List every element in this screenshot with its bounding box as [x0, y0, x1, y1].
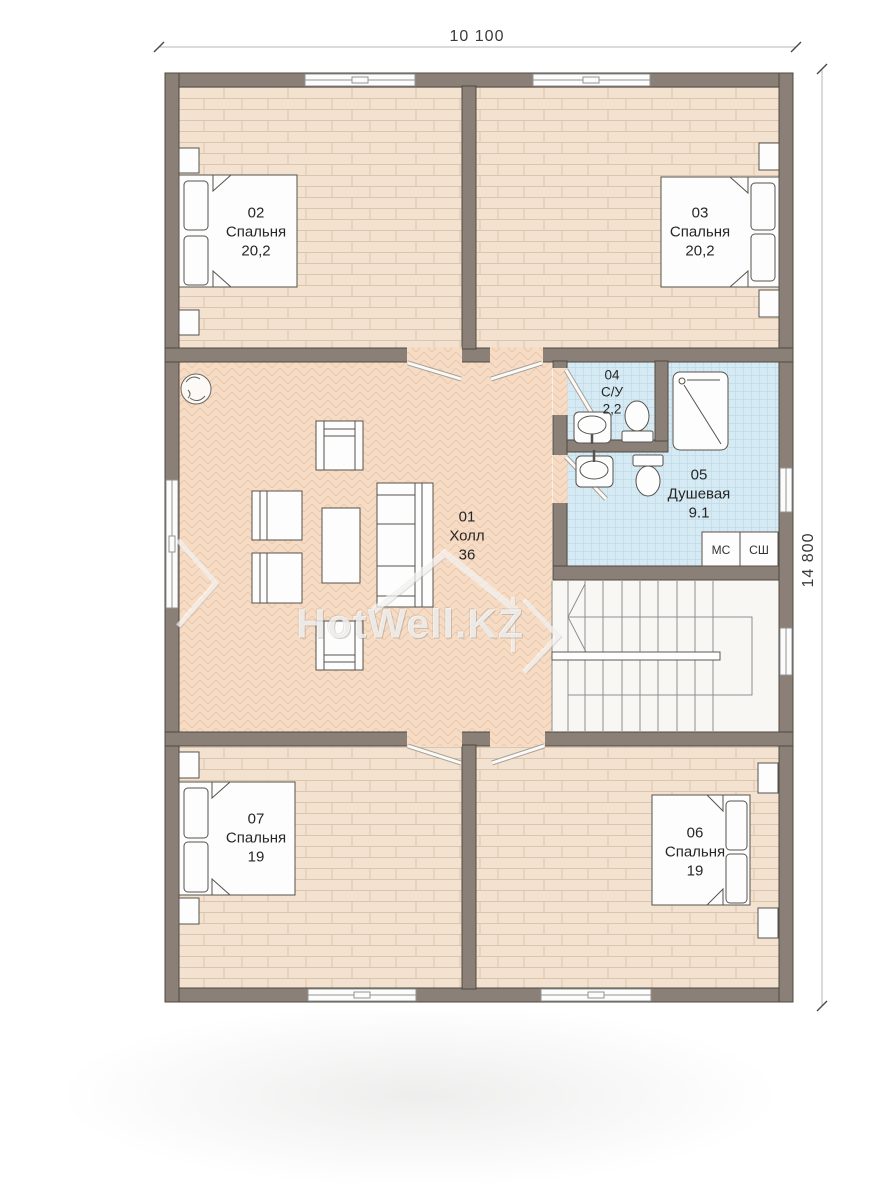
door-opening-07 [407, 732, 462, 747]
room-name: Спальня [665, 843, 725, 862]
room-label-bedroom-03: 03 Спальня 20,2 [670, 204, 730, 261]
room-name: Холл [449, 527, 484, 546]
wall-outer-bottom [165, 988, 793, 1002]
nightstand [179, 148, 199, 173]
room-label-bedroom-02: 02 Спальня 20,2 [226, 204, 286, 261]
room-number: 04 [601, 367, 623, 384]
door-opening-03 [490, 348, 543, 363]
chair-symbol-top [316, 421, 363, 470]
door-opening-04 [553, 368, 568, 415]
room-label-bedroom-07: 07 Спальня 19 [226, 810, 286, 867]
room-number: 05 [668, 466, 731, 485]
nightstand [179, 310, 199, 335]
nightstand [759, 143, 779, 170]
dimension-width-label: 10 100 [450, 28, 505, 46]
room-name: Спальня [226, 223, 286, 242]
wall-interior-upper [165, 348, 793, 362]
room-label-hall: 01 Холл 36 [449, 508, 484, 565]
wall-outer-top [165, 73, 793, 87]
window-symbol-bath-right [780, 468, 792, 512]
window-symbol-top-left [305, 74, 415, 86]
room-name: Спальня [670, 223, 730, 242]
wall-stairs-top [553, 566, 779, 580]
window-symbol-bottom-left [308, 989, 416, 1001]
plant-icon [181, 374, 211, 404]
closet-label-ms: МС [712, 543, 731, 557]
floor-hall [172, 355, 552, 739]
room-name: Душевая [668, 485, 731, 504]
nightstand [759, 290, 779, 317]
wall-04-shower [655, 361, 668, 441]
dimension-height-label: 14 800 [800, 533, 818, 588]
room-area: 19 [665, 862, 725, 881]
stair-handrail [552, 652, 720, 660]
wall-outer-right [779, 73, 793, 1002]
door-opening-05 [553, 455, 568, 503]
window-symbol-hall-left [166, 480, 178, 608]
wall-between-07-06 [462, 745, 476, 989]
window-symbol-bottom-right [541, 989, 651, 1001]
room-area: 36 [449, 546, 484, 565]
door-opening-02 [407, 348, 462, 363]
room-number: 06 [665, 824, 725, 843]
room-area: 19 [226, 848, 286, 867]
wall-between-02-03 [462, 86, 476, 349]
room-name: С/У [601, 384, 623, 401]
door-opening-06 [490, 732, 545, 747]
closet-label-ssh: СШ [749, 543, 769, 557]
coffee-table-symbol [322, 508, 360, 583]
armchair-symbol-upper [252, 491, 302, 540]
nightstand [758, 763, 778, 793]
nightstand [179, 752, 199, 778]
shower-symbol [673, 372, 728, 450]
armchair-symbol-lower [252, 553, 302, 603]
window-symbol-top-right [533, 74, 650, 86]
room-label-wc: 04 С/У 2,2 [601, 367, 623, 418]
room-number: 07 [226, 810, 286, 829]
room-label-shower: 05 Душевая 9.1 [668, 466, 731, 523]
floor-plan-page: HotWell.KZ 01 Холл 36 02 Спальня 20,2 03… [0, 0, 872, 1200]
room-name: Спальня [226, 829, 286, 848]
room-area: 20,2 [670, 242, 730, 261]
window-symbol-stairs-right [780, 628, 792, 675]
room-area: 20,2 [226, 242, 286, 261]
room-number: 01 [449, 508, 484, 527]
wall-interior-lower [165, 732, 793, 746]
sink-symbol-05 [576, 450, 613, 487]
room-number: 02 [226, 204, 286, 223]
room-area: 9.1 [668, 504, 731, 523]
nightstand [758, 908, 778, 938]
room-label-bedroom-06: 06 Спальня 19 [665, 824, 725, 881]
room-number: 03 [670, 204, 730, 223]
watermark-text: HotWell.KZ [296, 601, 524, 648]
nightstand [179, 898, 199, 924]
room-area: 2,2 [601, 401, 623, 418]
